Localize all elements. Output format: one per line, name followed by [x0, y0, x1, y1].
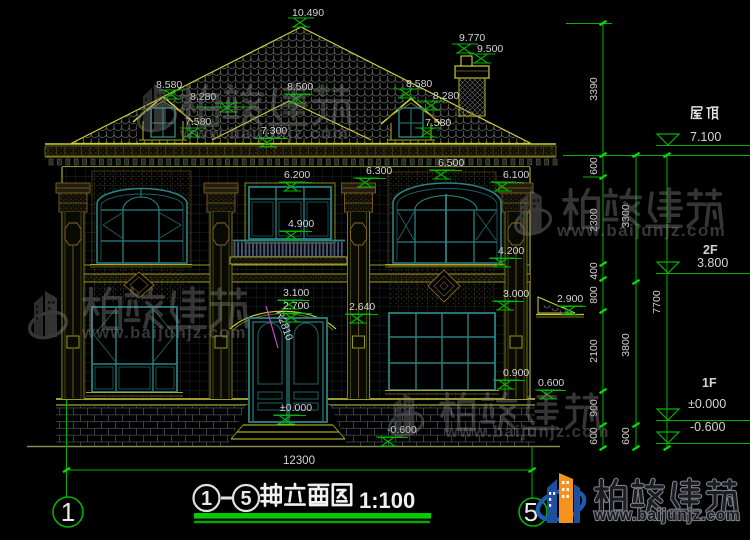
svg-text:2100: 2100	[588, 339, 600, 363]
svg-text:3.800: 3.800	[697, 256, 728, 270]
svg-text:10.490: 10.490	[292, 7, 324, 19]
svg-text:±0.000: ±0.000	[280, 402, 312, 414]
svg-text:3390: 3390	[588, 77, 600, 101]
svg-text:600: 600	[620, 427, 632, 445]
svg-text:www.baijunjz.com: www.baijunjz.com	[556, 221, 726, 240]
svg-text:7700: 7700	[651, 290, 663, 314]
svg-text:7.580: 7.580	[425, 117, 451, 129]
svg-text:12300: 12300	[283, 455, 315, 467]
svg-text:3800: 3800	[620, 333, 632, 357]
svg-text:1F: 1F	[702, 376, 717, 390]
svg-text:9.500: 9.500	[477, 43, 503, 55]
svg-text:6.300: 6.300	[366, 165, 392, 177]
svg-text:600: 600	[588, 157, 600, 175]
svg-text:www.baijunjz.com: www.baijunjz.com	[179, 124, 349, 143]
svg-text:6.500: 6.500	[438, 157, 464, 169]
svg-text:5: 5	[240, 488, 251, 510]
svg-text:4.200: 4.200	[498, 245, 524, 257]
svg-text:2.640: 2.640	[349, 301, 375, 313]
svg-text:8.580: 8.580	[406, 78, 432, 90]
svg-text:2F: 2F	[703, 243, 718, 257]
svg-text:3.100: 3.100	[283, 287, 309, 299]
svg-text:1: 1	[61, 497, 75, 527]
svg-text:3.000: 3.000	[503, 288, 529, 300]
svg-text:±0.000: ±0.000	[688, 397, 726, 411]
svg-text:400: 400	[588, 262, 600, 280]
svg-text:www.baijunjz.com: www.baijunjz.com	[444, 423, 610, 441]
svg-text:2.700: 2.700	[283, 300, 309, 312]
svg-text:www.baijunjz.com: www.baijunjz.com	[593, 507, 741, 524]
svg-text:1:100: 1:100	[359, 488, 415, 513]
svg-text:0.600: 0.600	[538, 377, 564, 389]
svg-text:0.900: 0.900	[503, 367, 529, 379]
svg-text:6.100: 6.100	[503, 169, 529, 181]
svg-text:4.900: 4.900	[288, 218, 314, 230]
svg-text:800: 800	[588, 286, 600, 304]
svg-text:1: 1	[201, 488, 212, 510]
svg-text:6.200: 6.200	[284, 169, 310, 181]
svg-text:www.baijunjz.com: www.baijunjz.com	[81, 324, 247, 342]
svg-text:7.100: 7.100	[690, 130, 721, 144]
svg-text:2.900: 2.900	[557, 293, 583, 305]
svg-text:-0.600: -0.600	[690, 420, 725, 434]
svg-text:8.280: 8.280	[433, 90, 459, 102]
